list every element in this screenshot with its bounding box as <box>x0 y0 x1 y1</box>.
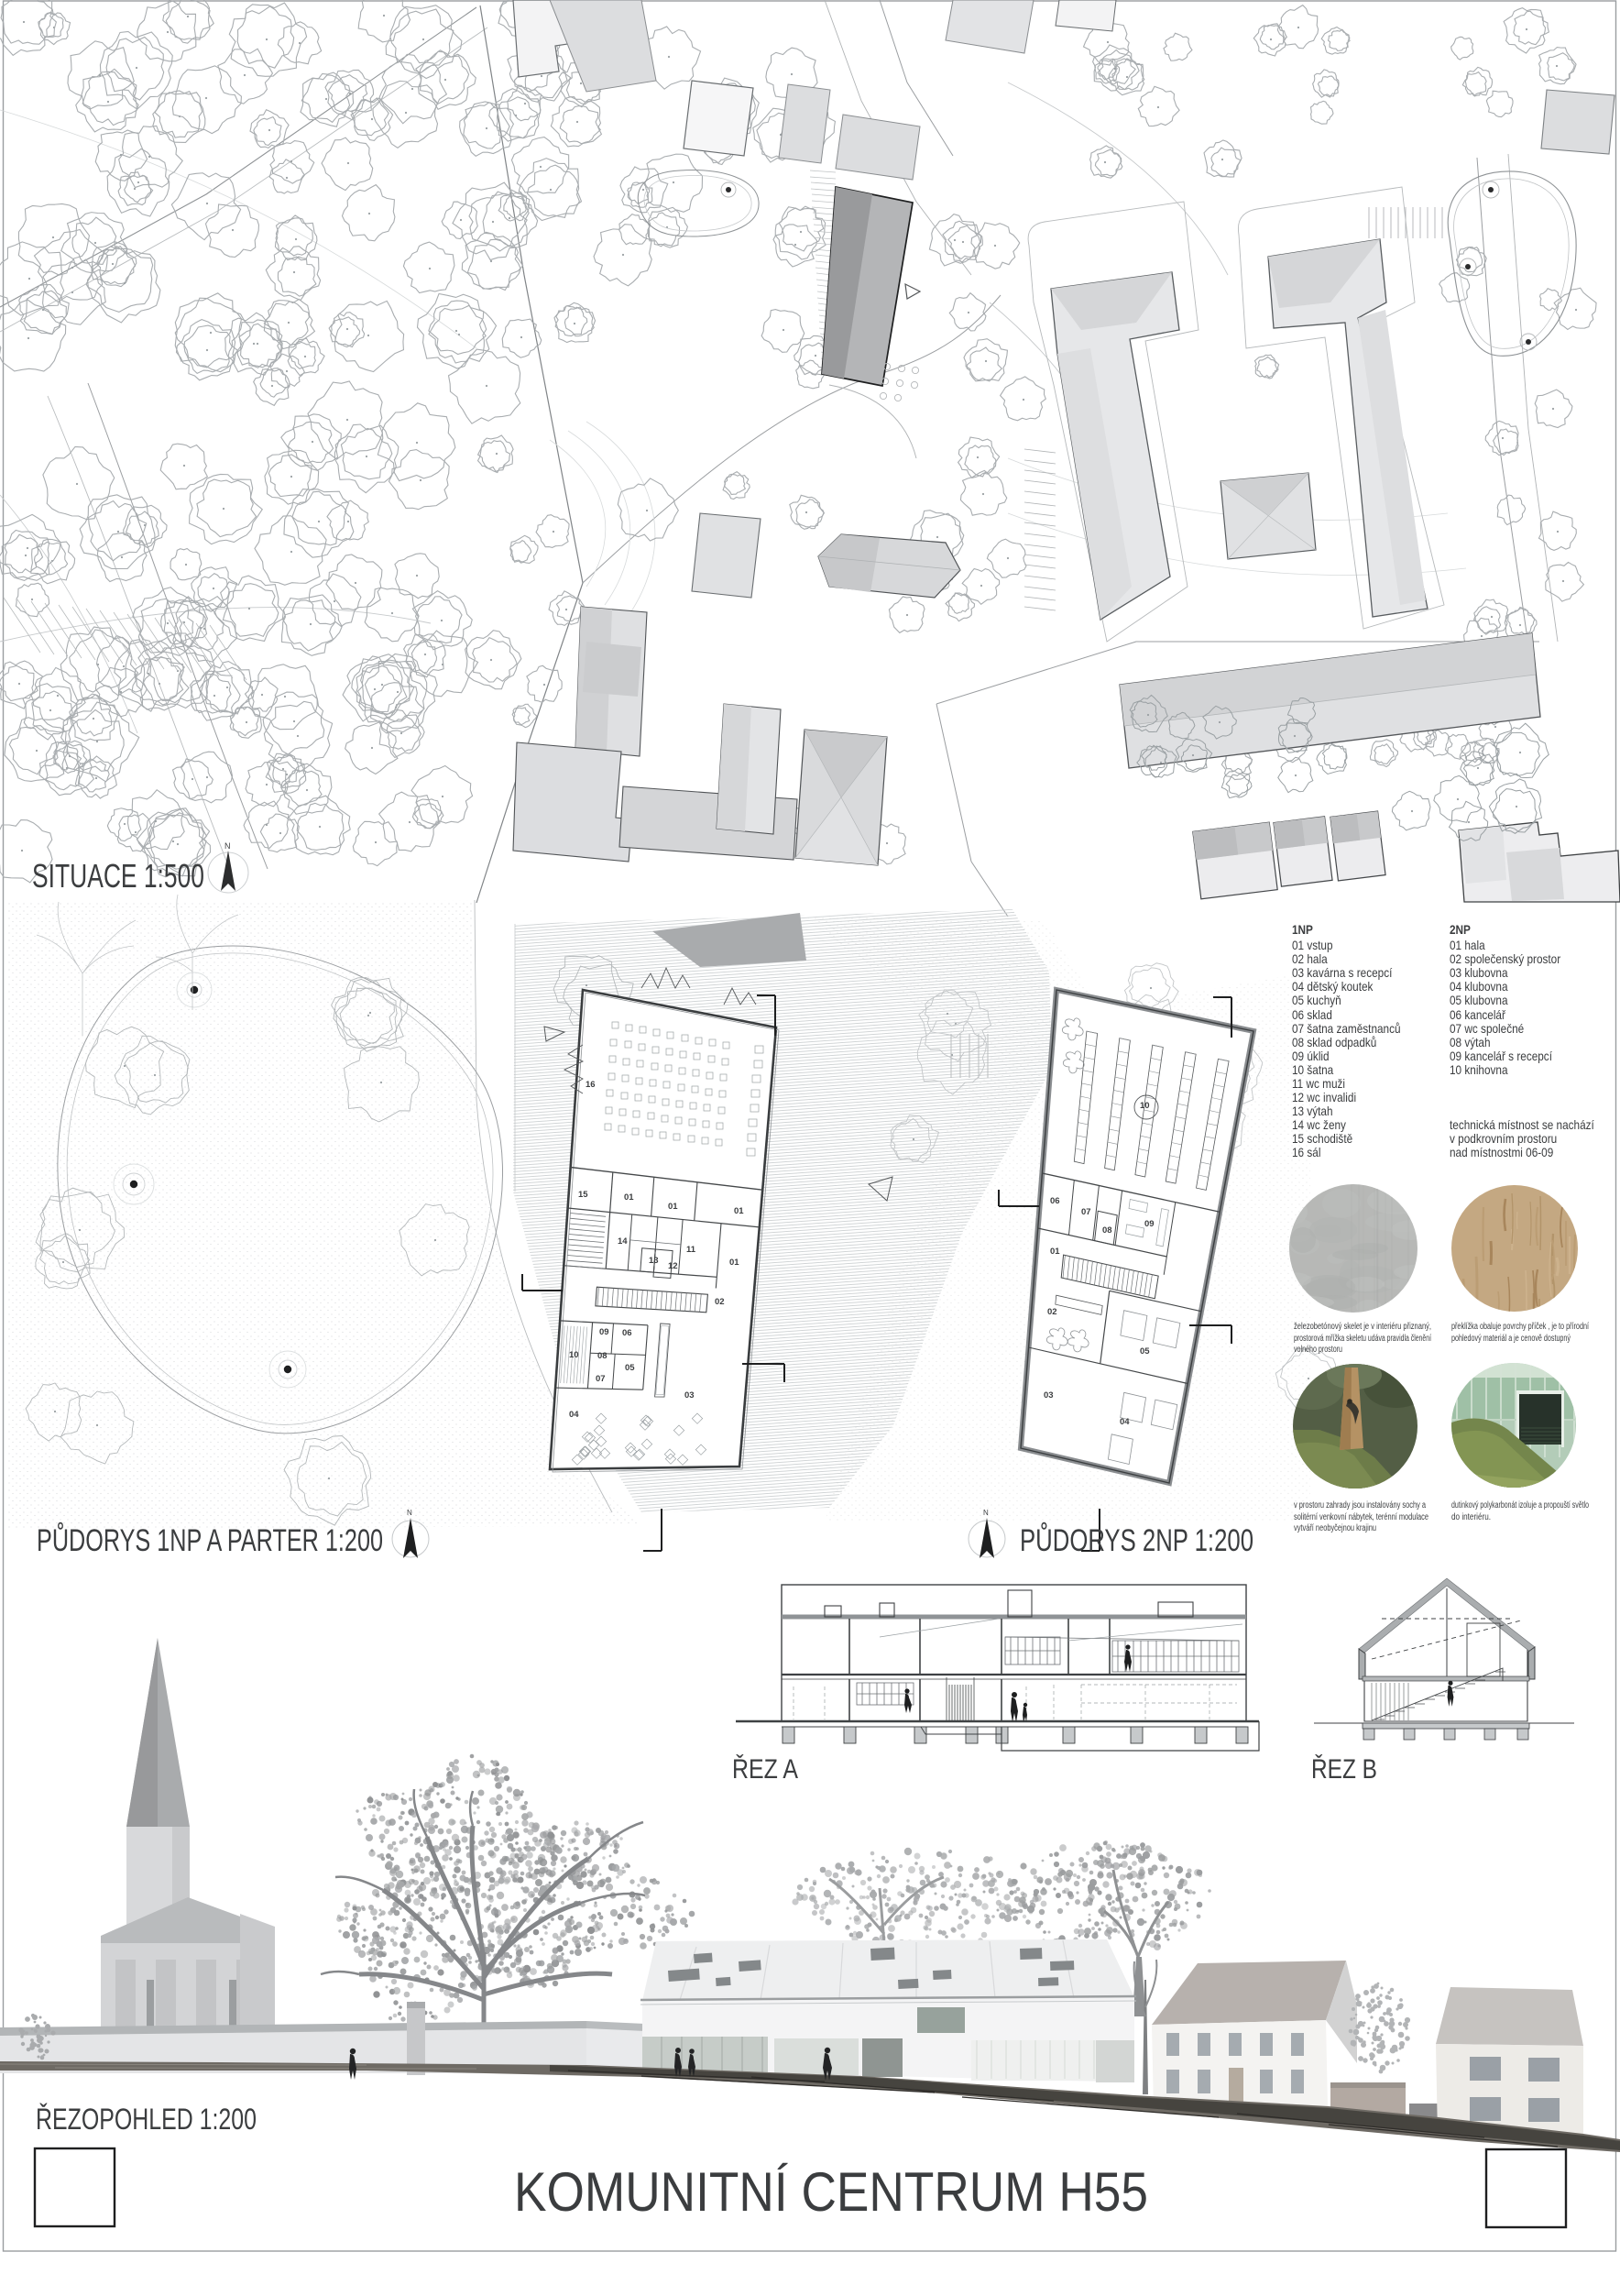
svg-text:08 výtah: 08 výtah <box>1450 1036 1491 1049</box>
svg-text:překlížka obaluje povrchy příč: překlížka obaluje povrchy příček , je to… <box>1451 1322 1589 1332</box>
svg-text:10 knihovna: 10 knihovna <box>1450 1063 1508 1077</box>
svg-text:11 wc muži: 11 wc muži <box>1292 1077 1345 1091</box>
svg-text:1NP: 1NP <box>1292 923 1313 937</box>
svg-text:02 hala: 02 hala <box>1292 952 1329 966</box>
svg-text:01: 01 <box>624 1192 634 1203</box>
svg-text:09 úklid: 09 úklid <box>1292 1049 1330 1063</box>
svg-text:16: 16 <box>586 1080 596 1090</box>
svg-text:10: 10 <box>569 1350 579 1360</box>
svg-text:15: 15 <box>578 1190 588 1200</box>
svg-text:06 kancelář: 06 kancelář <box>1450 1008 1506 1022</box>
svg-text:technická místnost se nachází: technická místnost se nachází <box>1450 1118 1594 1132</box>
svg-text:01: 01 <box>668 1202 678 1212</box>
svg-text:06 sklad: 06 sklad <box>1292 1008 1332 1022</box>
svg-text:02: 02 <box>715 1297 725 1307</box>
svg-text:05: 05 <box>625 1363 635 1373</box>
svg-text:v prostoru zahrady jsou instal: v prostoru zahrady jsou instalovány soch… <box>1294 1500 1426 1511</box>
svg-text:ŘEZOPOHLED 1:200: ŘEZOPOHLED 1:200 <box>36 2103 257 2136</box>
svg-text:10: 10 <box>1140 1101 1150 1111</box>
svg-text:03 kavárna s recepcí: 03 kavárna s recepcí <box>1292 966 1393 980</box>
svg-text:04 klubovna: 04 klubovna <box>1450 980 1508 994</box>
svg-text:železobetónový skelet je v int: železobetónový skelet je v interiéru při… <box>1294 1322 1431 1332</box>
svg-text:14: 14 <box>618 1236 628 1247</box>
svg-text:PŮDORYS 2NP 1:200: PŮDORYS 2NP 1:200 <box>1020 1522 1253 1558</box>
svg-text:02: 02 <box>1047 1307 1057 1317</box>
svg-text:16 sál: 16 sál <box>1292 1146 1320 1159</box>
svg-text:03: 03 <box>684 1390 695 1401</box>
svg-text:06: 06 <box>1050 1196 1060 1206</box>
svg-text:11: 11 <box>686 1245 696 1255</box>
svg-text:solitérní venkovní nábytek, te: solitérní venkovní nábytek, terénní modu… <box>1294 1512 1428 1522</box>
svg-text:01: 01 <box>734 1206 744 1216</box>
svg-text:07: 07 <box>1081 1207 1091 1217</box>
svg-text:2NP: 2NP <box>1450 923 1471 937</box>
svg-text:dutinkový polykarbonát izoluje: dutinkový polykarbonát izoluje a propouš… <box>1451 1500 1589 1511</box>
svg-text:04: 04 <box>569 1410 579 1420</box>
svg-text:09 kancelář s recepcí: 09 kancelář s recepcí <box>1450 1049 1552 1063</box>
svg-text:prostorová mřížka skeletu udáv: prostorová mřížka skeletu udáva pravidla… <box>1294 1334 1431 1344</box>
svg-text:01: 01 <box>1050 1247 1060 1257</box>
svg-text:04: 04 <box>1120 1417 1130 1427</box>
svg-text:ŘEZ B: ŘEZ B <box>1311 1754 1377 1785</box>
svg-text:nad místnostmi 06-09: nad místnostmi 06-09 <box>1450 1146 1553 1159</box>
svg-text:PŮDORYS 1NP A PARTER 1:200: PŮDORYS 1NP A PARTER 1:200 <box>37 1522 383 1558</box>
svg-text:08: 08 <box>597 1351 607 1361</box>
svg-text:ŘEZ A: ŘEZ A <box>732 1754 798 1785</box>
svg-text:12: 12 <box>668 1261 678 1271</box>
svg-text:15 schodiště: 15 schodiště <box>1292 1132 1352 1146</box>
svg-text:08 sklad odpadků: 08 sklad odpadků <box>1292 1036 1376 1049</box>
svg-text:12 wc invalidi: 12 wc invalidi <box>1292 1091 1356 1104</box>
svg-text:N: N <box>224 841 231 851</box>
svg-text:07 šatna zaměstnanců: 07 šatna zaměstnanců <box>1292 1022 1401 1036</box>
svg-text:06: 06 <box>622 1328 632 1338</box>
svg-text:07: 07 <box>596 1374 606 1384</box>
svg-text:10 šatna: 10 šatna <box>1292 1063 1334 1077</box>
svg-text:09: 09 <box>599 1327 609 1337</box>
svg-text:07 wc společné: 07 wc společné <box>1450 1022 1524 1036</box>
svg-text:08: 08 <box>1102 1225 1112 1236</box>
svg-text:14 wc ženy: 14 wc ženy <box>1292 1118 1347 1132</box>
svg-text:03 klubovna: 03 klubovna <box>1450 966 1508 980</box>
svg-text:01: 01 <box>729 1258 739 1268</box>
svg-text:pohledový materiál a je cenově: pohledový materiál a je cenově dostupný <box>1451 1334 1571 1344</box>
svg-text:05 klubovna: 05 klubovna <box>1450 994 1508 1007</box>
svg-text:do interiéru.: do interiéru. <box>1451 1512 1491 1522</box>
svg-text:v podkrovním prostoru: v podkrovním prostoru <box>1450 1132 1557 1146</box>
svg-text:04 dětský koutek: 04 dětský koutek <box>1292 980 1374 994</box>
svg-text:volného prostoru: volného prostoru <box>1294 1345 1342 1355</box>
svg-text:02 společenský prostor: 02 společenský prostor <box>1450 952 1560 966</box>
svg-text:01 vstup: 01 vstup <box>1292 939 1333 952</box>
svg-text:05: 05 <box>1140 1346 1150 1357</box>
svg-text:vytváří neobyčejnou krajinu: vytváří neobyčejnou krajinu <box>1294 1523 1376 1533</box>
svg-text:13 výtah: 13 výtah <box>1292 1104 1333 1118</box>
svg-text:09: 09 <box>1144 1219 1155 1229</box>
svg-text:05 kuchyň: 05 kuchyň <box>1292 994 1341 1007</box>
svg-text:03: 03 <box>1044 1390 1054 1401</box>
svg-text:01 hala: 01 hala <box>1450 939 1486 952</box>
svg-text:SITUACE 1:500: SITUACE 1:500 <box>32 857 204 895</box>
svg-text:13: 13 <box>649 1256 659 1266</box>
svg-text:N: N <box>407 1509 412 1517</box>
svg-text:N: N <box>983 1509 989 1517</box>
svg-text:KOMUNITNÍ CENTRUM H55: KOMUNITNÍ CENTRUM H55 <box>514 2161 1148 2223</box>
